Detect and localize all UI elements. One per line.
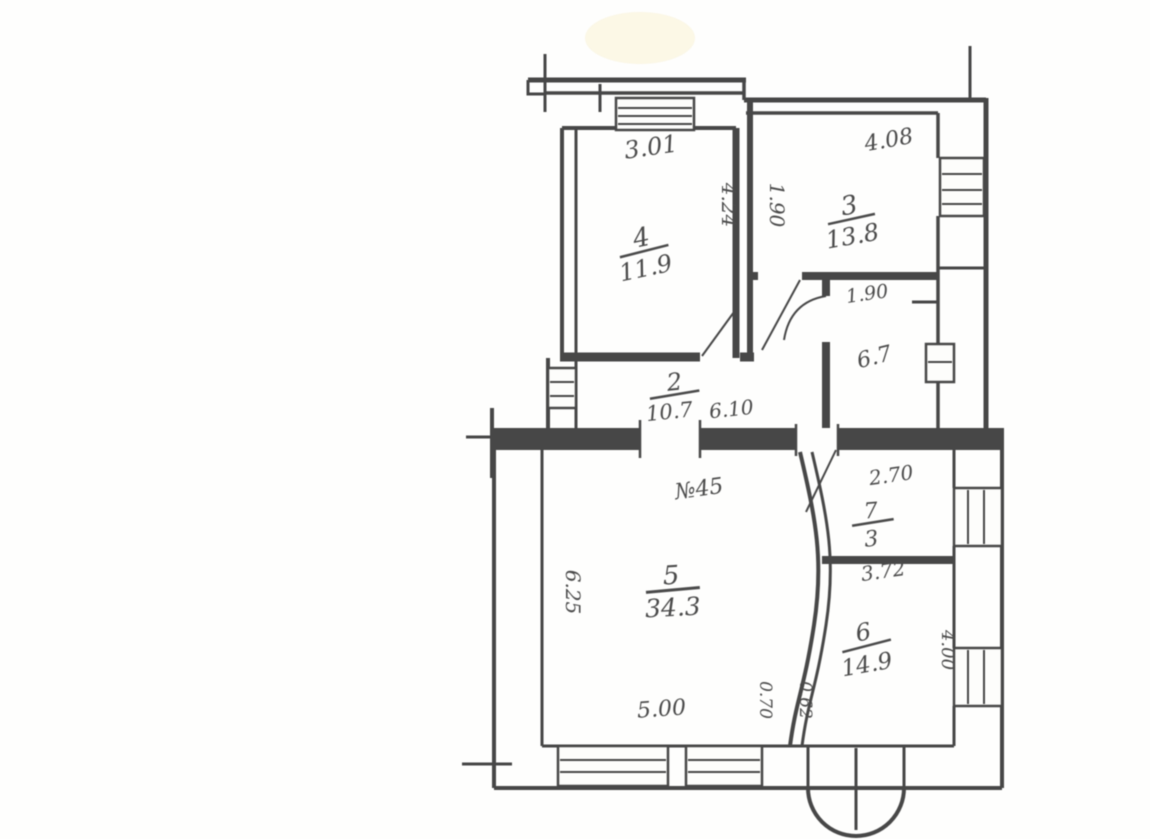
dim-room3-width: 4.08 [862,124,916,157]
hallway-label: 2 10.7 [642,366,703,426]
window-room7-right [954,488,1002,546]
bottom-bay [808,746,904,836]
room-6-area: 14.9 [840,648,895,682]
dim-room6-width: 3.72 [859,556,906,586]
window-room4-top [616,98,694,130]
scan-stain [585,12,695,64]
room-5-area: 34.3 [644,592,701,624]
window-room5-bottom-2 [686,746,762,786]
apartment-number: №45 [672,474,725,506]
window-frame [558,746,668,786]
dim-room3-left: 1.90 [765,183,789,228]
window-frame [548,368,576,408]
partition-walls [490,100,1002,746]
bathroom-area: 6.7 [854,341,894,374]
window-frame [616,98,694,130]
dim-door-left: 0.70 [755,681,775,719]
wall-hall-bottom-a [490,428,640,450]
labels: 3.01 4 11.9 4.24 4.08 3 13.8 1.90 1.90 6… [561,124,958,724]
room-6-number: 6 [853,617,873,647]
wall-hall-bottom-c [838,428,1002,450]
dim-room7-width: 2.70 [866,460,915,490]
room-5-label: 5 34.3 [643,560,702,624]
window-frame [686,746,762,786]
room-6-label: 6 14.9 [834,614,897,682]
window-frame [940,158,984,216]
dim-door-right: 0.62 [795,681,815,719]
window-room5-bottom [558,746,668,786]
door-leaf-room4 [702,312,734,356]
window-hallway-left [548,368,576,408]
window-room3-right [940,158,984,216]
room-7-label: 7 3 [850,497,896,553]
dim-room5-width: 5.00 [636,695,687,723]
window-frame [954,488,1002,546]
dim-room4-width: 3.01 [622,129,679,164]
scanned-floor-plan-page: 3.01 4 11.9 4.24 4.08 3 13.8 1.90 1.90 6… [0,0,1150,839]
dim-room4-depth: 4.24 [717,182,741,228]
door-jambs-room6 [796,424,838,456]
hallway-area: 10.7 [645,397,695,426]
door-leaf-bathroom [784,296,826,340]
dim-room5-depth: 6.25 [561,570,585,615]
dim-room6-depth: 4.00 [937,629,958,670]
wall-hall-bottom-b [700,428,796,450]
room-5-number: 5 [662,561,680,592]
dim-bathroom-width: 1.90 [845,280,890,308]
floor-plan-drawing: 3.01 4 11.9 4.24 4.08 3 13.8 1.90 1.90 6… [0,0,1150,839]
window-room6-right [954,648,1002,706]
room-4-label: 4 11.9 [610,219,675,288]
room-7-area: 3 [863,527,879,553]
window-bathroom-vent [926,344,954,382]
dim-hallway-length: 6.10 [708,395,755,424]
door-leaf-room7 [806,450,836,512]
room-3-label: 3 13.8 [818,187,881,254]
window-frame [954,648,1002,706]
